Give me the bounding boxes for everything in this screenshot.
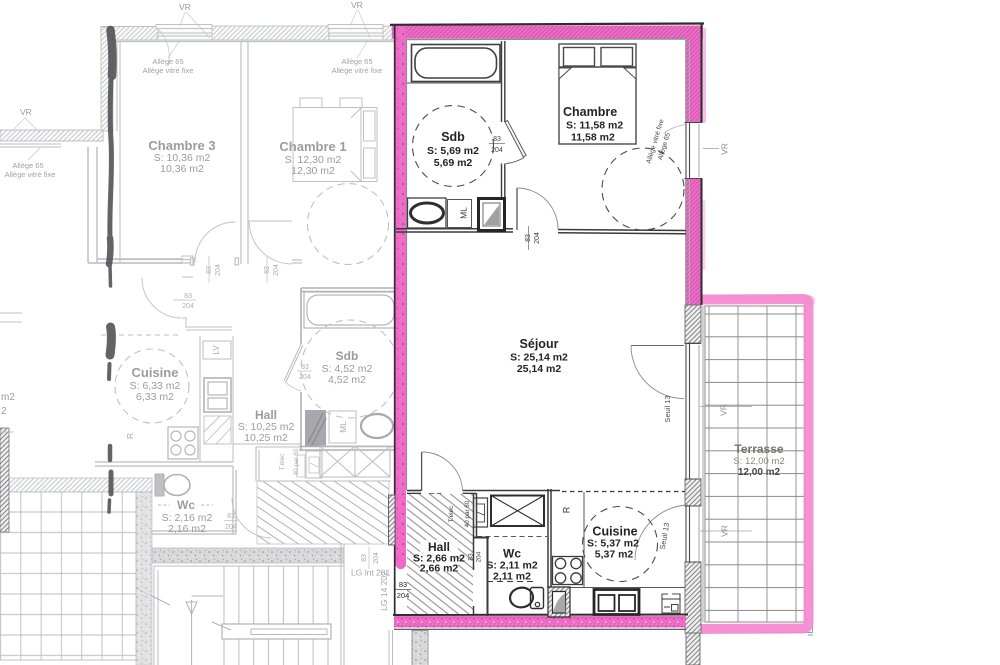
svg-text:4,52 m2: 4,52 m2 (328, 374, 366, 386)
svg-text:5,37 m2: 5,37 m2 (595, 549, 634, 561)
svg-text:m2: m2 (1, 392, 15, 403)
svg-text:Terrasse: Terrasse (734, 442, 783, 456)
svg-text:LG 14 202: LG 14 202 (379, 571, 389, 611)
svg-text:Chambre 3: Chambre 3 (148, 138, 215, 153)
svg-text:Allège vitré fixe: Allège vitré fixe (5, 170, 56, 179)
svg-text:83: 83 (361, 554, 368, 562)
svg-text:2,66 m2: 2,66 m2 (420, 563, 459, 575)
svg-text:VR: VR (179, 2, 191, 12)
svg-text:Allège 65: Allège 65 (341, 57, 372, 66)
svg-text:2,11 m2: 2,11 m2 (493, 571, 531, 583)
svg-text:S: 11,58 m2: S: 11,58 m2 (566, 120, 623, 132)
svg-text:83: 83 (301, 364, 309, 371)
svg-text:204: 204 (182, 303, 194, 310)
svg-text:6,33 m2: 6,33 m2 (136, 391, 174, 403)
svg-text:10,25 m2: 10,25 m2 (244, 432, 288, 444)
svg-text:VR: VR (719, 404, 729, 416)
svg-text:S: 12,00 m2: S: 12,00 m2 (733, 456, 784, 467)
svg-text:Allège 65: Allège 65 (12, 161, 43, 170)
svg-text:VR: VR (351, 0, 363, 10)
svg-text:204: 204 (397, 591, 410, 600)
svg-text:S: 25,14 m2: S: 25,14 m2 (510, 352, 568, 364)
svg-text:2,16 m2: 2,16 m2 (168, 523, 206, 535)
svg-text:Chambre 1: Chambre 1 (279, 139, 346, 154)
svg-text:11,58 m2: 11,58 m2 (571, 132, 615, 144)
svg-text:40 par 60: 40 par 60 (293, 448, 300, 475)
svg-text:204: 204 (476, 551, 483, 562)
svg-text:12,00 m2: 12,00 m2 (738, 467, 781, 478)
svg-text:83: 83 (184, 293, 192, 300)
svg-text:204: 204 (373, 552, 380, 564)
svg-text:204: 204 (215, 264, 222, 276)
svg-text:83: 83 (227, 513, 235, 520)
svg-text:83: 83 (493, 136, 501, 143)
svg-text:83: 83 (264, 266, 271, 274)
svg-text:VR: VR (720, 143, 730, 155)
svg-text:Hall: Hall (255, 408, 277, 422)
svg-text:LV: LV (212, 345, 221, 355)
svg-text:2: 2 (1, 406, 7, 417)
svg-text:40 par 60: 40 par 60 (464, 500, 471, 527)
svg-text:25,14 m2: 25,14 m2 (517, 363, 562, 375)
svg-text:12,30 m2: 12,30 m2 (291, 165, 335, 177)
svg-text:Wc: Wc (503, 547, 521, 561)
svg-text:204: 204 (534, 232, 541, 244)
svg-text:ML: ML (338, 421, 348, 433)
svg-text:5,69 m2: 5,69 m2 (434, 157, 473, 169)
svg-text:Allège vitré fixe: Allège vitré fixe (332, 66, 383, 75)
svg-text:Cuisine: Cuisine (132, 365, 179, 380)
svg-text:83: 83 (468, 553, 475, 561)
svg-text:204: 204 (225, 524, 237, 531)
svg-text:Seuil 13: Seuil 13 (663, 395, 672, 422)
svg-text:ML: ML (459, 207, 469, 219)
svg-text:204: 204 (273, 264, 280, 276)
svg-text:Wc: Wc (177, 498, 195, 512)
svg-text:T.elec: T.elec (448, 506, 455, 522)
svg-text:83: 83 (206, 266, 213, 274)
svg-text:Allège vitré fixe: Allège vitré fixe (143, 66, 194, 75)
svg-text:VR: VR (720, 525, 730, 537)
svg-text:Sdb: Sdb (441, 130, 465, 144)
svg-text:R: R (125, 433, 135, 439)
svg-text:Allège 65: Allège 65 (152, 57, 183, 66)
svg-text:Séjour: Séjour (520, 337, 559, 351)
svg-text:Cuisine: Cuisine (592, 525, 637, 539)
svg-text:10,36 m2: 10,36 m2 (160, 163, 204, 175)
svg-text:Chambre: Chambre (563, 105, 617, 119)
svg-text:T.elec: T.elec (279, 454, 286, 470)
svg-text:S: 5,69 m2: S: 5,69 m2 (427, 145, 479, 157)
svg-text:Sdb: Sdb (336, 349, 359, 363)
svg-text:83: 83 (399, 580, 407, 589)
svg-text:R: R (562, 506, 572, 513)
svg-text:204: 204 (299, 374, 311, 381)
svg-text:VR: VR (20, 107, 32, 117)
